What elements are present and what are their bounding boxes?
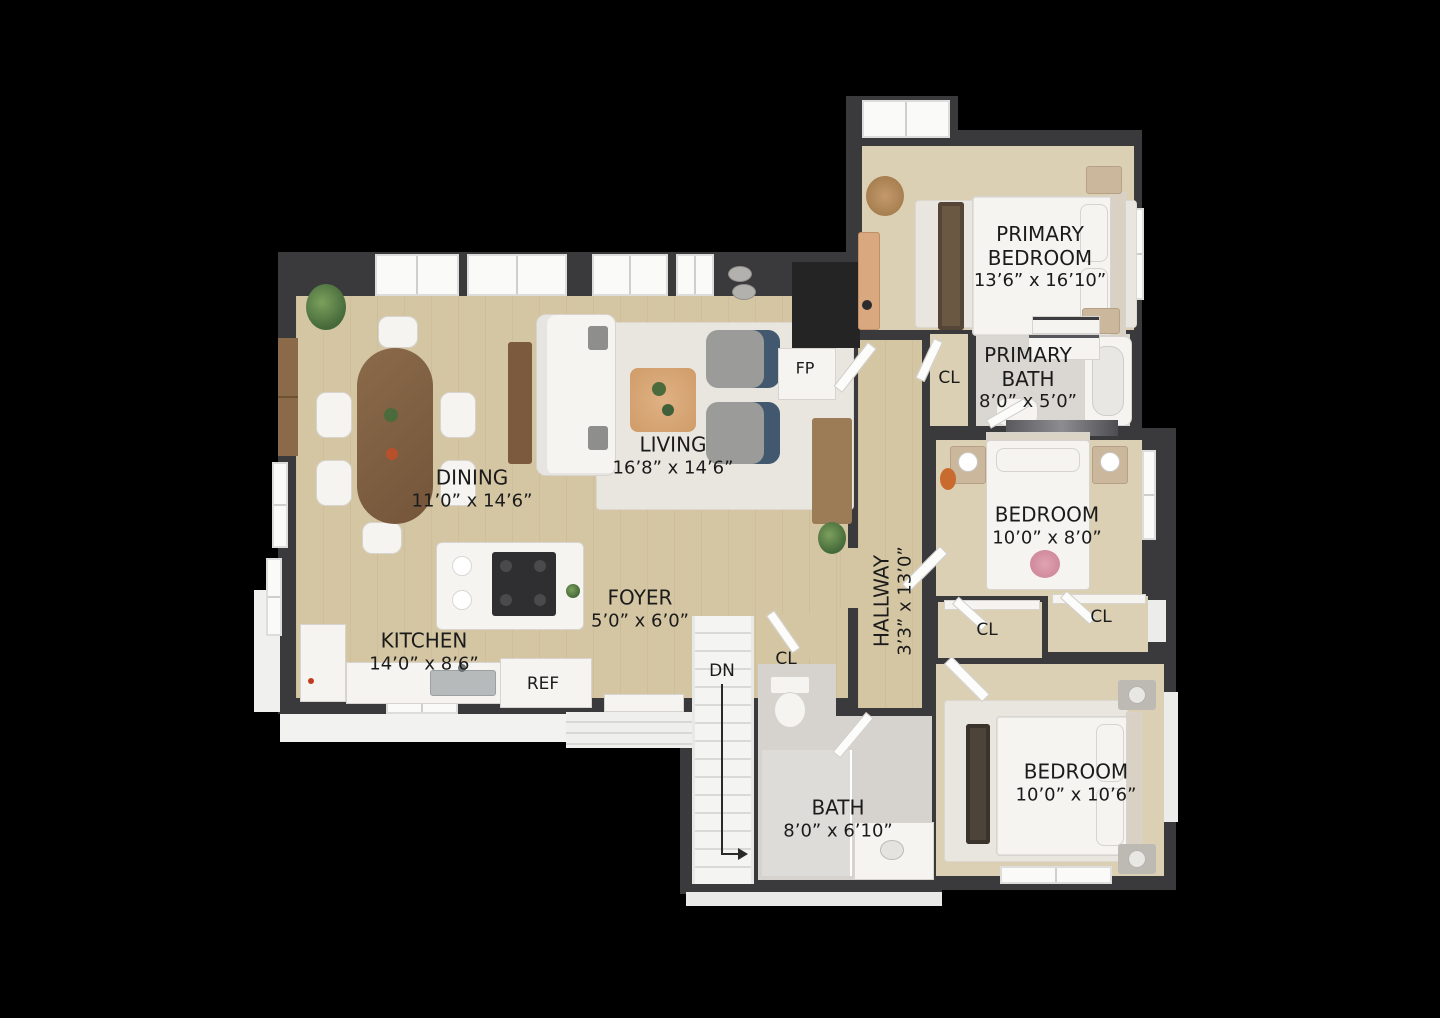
closet-label-right: CL: [1090, 607, 1111, 627]
ceiling-light: [728, 266, 752, 282]
trim-right-lower-bedroom: [1164, 692, 1178, 822]
vanity-sink: [880, 840, 904, 860]
floor-lamp: [862, 300, 872, 310]
room-dims: 13’6” x 16’10”: [965, 270, 1115, 291]
room-label-living: LIVING 16’8” x 14’6”: [613, 434, 734, 479]
room-label-primary-bedroom: PRIMARY BEDROOM 13’6” x 16’10”: [965, 223, 1115, 291]
media-wall: [792, 262, 860, 348]
window-left-2: [266, 558, 282, 636]
room-name: LIVING: [613, 434, 734, 458]
toy-decor: [940, 468, 956, 490]
coffee-table-plant: [652, 382, 666, 396]
closet-label-left: CL: [976, 620, 997, 640]
front-door: [604, 694, 684, 712]
room-dims: 5’0” x 6’0”: [591, 610, 689, 631]
stairs-down-label: DN: [709, 661, 735, 681]
lamp: [958, 452, 978, 472]
room-dims: 16’8” x 14’6”: [613, 457, 734, 478]
table-centerpiece: [386, 448, 398, 460]
porch-bottom-left: [280, 714, 576, 742]
sofa-pillow: [588, 326, 608, 350]
room-name: HALLWAY: [871, 546, 895, 655]
toilet-bowl: [774, 692, 806, 728]
pillow: [996, 448, 1080, 472]
window-bedroom-lower-bottom: [1000, 866, 1112, 884]
window-alcove: [862, 100, 950, 138]
window-left-1: [272, 462, 288, 548]
basket-plant: [866, 176, 904, 216]
room-name: PRIMARY BATH: [976, 344, 1080, 391]
room-name: KITCHEN: [369, 630, 478, 654]
window-top-3: [592, 254, 668, 296]
dresser: [1032, 316, 1100, 334]
french-door-left: [278, 338, 298, 456]
lamp: [1100, 452, 1120, 472]
room-label-bedroom-lower: BEDROOM 10’0” x 10’6”: [1016, 761, 1137, 806]
closet-label-primary: CL: [938, 368, 959, 388]
window-top-4: [676, 254, 714, 296]
stairs-down-arrow: [714, 682, 754, 866]
window-bedroom-mid-right: [1142, 450, 1156, 540]
trim-right-closet: [1148, 600, 1166, 642]
appliance-indicator: [308, 678, 314, 684]
room-name: BEDROOM: [992, 504, 1101, 528]
room-dims: 10’0” x 8’0”: [992, 527, 1101, 548]
room-label-kitchen: KITCHEN 14’0” x 8’6”: [369, 630, 478, 675]
room-label-hallway: HALLWAY 3’3” x 13’0”: [871, 546, 916, 655]
room-name: DINING: [412, 467, 533, 491]
nightstand: [1086, 166, 1122, 194]
refrigerator-label: REF: [527, 674, 559, 694]
burner: [534, 560, 546, 572]
console-table: [508, 342, 532, 464]
island-herb: [566, 584, 580, 598]
appliance-left: [300, 624, 346, 702]
burner: [500, 594, 512, 606]
fireplace-label: FP: [796, 359, 815, 378]
sofa-pillow: [588, 426, 608, 450]
table-centerpiece: [384, 408, 398, 422]
floorplan-stage: DINING 11’0” x 14’6” LIVING 16’8” x 14’6…: [0, 0, 1440, 1018]
dining-chair: [316, 392, 352, 438]
room-name: PRIMARY BEDROOM: [965, 223, 1115, 270]
floor-hall-opening: [840, 548, 864, 608]
room-label-dining: DINING 11’0” x 14’6”: [412, 467, 533, 512]
burner: [534, 594, 546, 606]
dining-chair: [378, 316, 418, 348]
island-plate: [452, 556, 472, 576]
bed-bench: [938, 202, 964, 330]
room-dims: 8’0” x 6’10”: [783, 820, 892, 841]
primary-desk: [858, 232, 880, 330]
bed-bench: [966, 724, 990, 844]
room-name: BATH: [783, 797, 892, 821]
lamp: [1128, 686, 1146, 704]
coffee-table: [630, 368, 696, 432]
ceiling-light: [732, 284, 756, 300]
room-dims: 3’3” x 13’0”: [894, 546, 915, 655]
room-dims: 14’0” x 8’6”: [369, 653, 478, 674]
room-label-bath: BATH 8’0” x 6’10”: [783, 797, 892, 842]
porch-bath-block: [686, 892, 942, 906]
dining-chair: [362, 522, 402, 554]
plant-living: [818, 522, 846, 554]
window-top-1: [375, 254, 459, 296]
burner: [500, 560, 512, 572]
console-right-wall: [812, 418, 852, 524]
room-dims: 11’0” x 14’6”: [412, 490, 533, 511]
room-dims: 10’0” x 10’6”: [1016, 784, 1137, 805]
island-plate: [452, 590, 472, 610]
armchair: [706, 330, 780, 388]
room-label-bedroom-mid: BEDROOM 10’0” x 8’0”: [992, 504, 1101, 549]
dining-chair: [440, 392, 476, 438]
room-label-foyer: FOYER 5’0” x 6’0”: [591, 587, 689, 632]
pink-pouf: [1030, 550, 1060, 578]
closet-label-foyer: CL: [775, 649, 796, 669]
window-top-2: [467, 254, 567, 296]
coffee-table-plant: [662, 404, 674, 416]
room-dims: 8’0” x 5’0”: [976, 391, 1080, 412]
plant-dining: [306, 284, 346, 330]
room-name: BEDROOM: [1016, 761, 1137, 785]
room-name: FOYER: [591, 587, 689, 611]
room-label-primary-bath: PRIMARY BATH 8’0” x 5’0”: [976, 344, 1080, 412]
dining-chair: [316, 460, 352, 506]
entry-steps: [566, 712, 708, 748]
lamp: [1128, 850, 1146, 868]
